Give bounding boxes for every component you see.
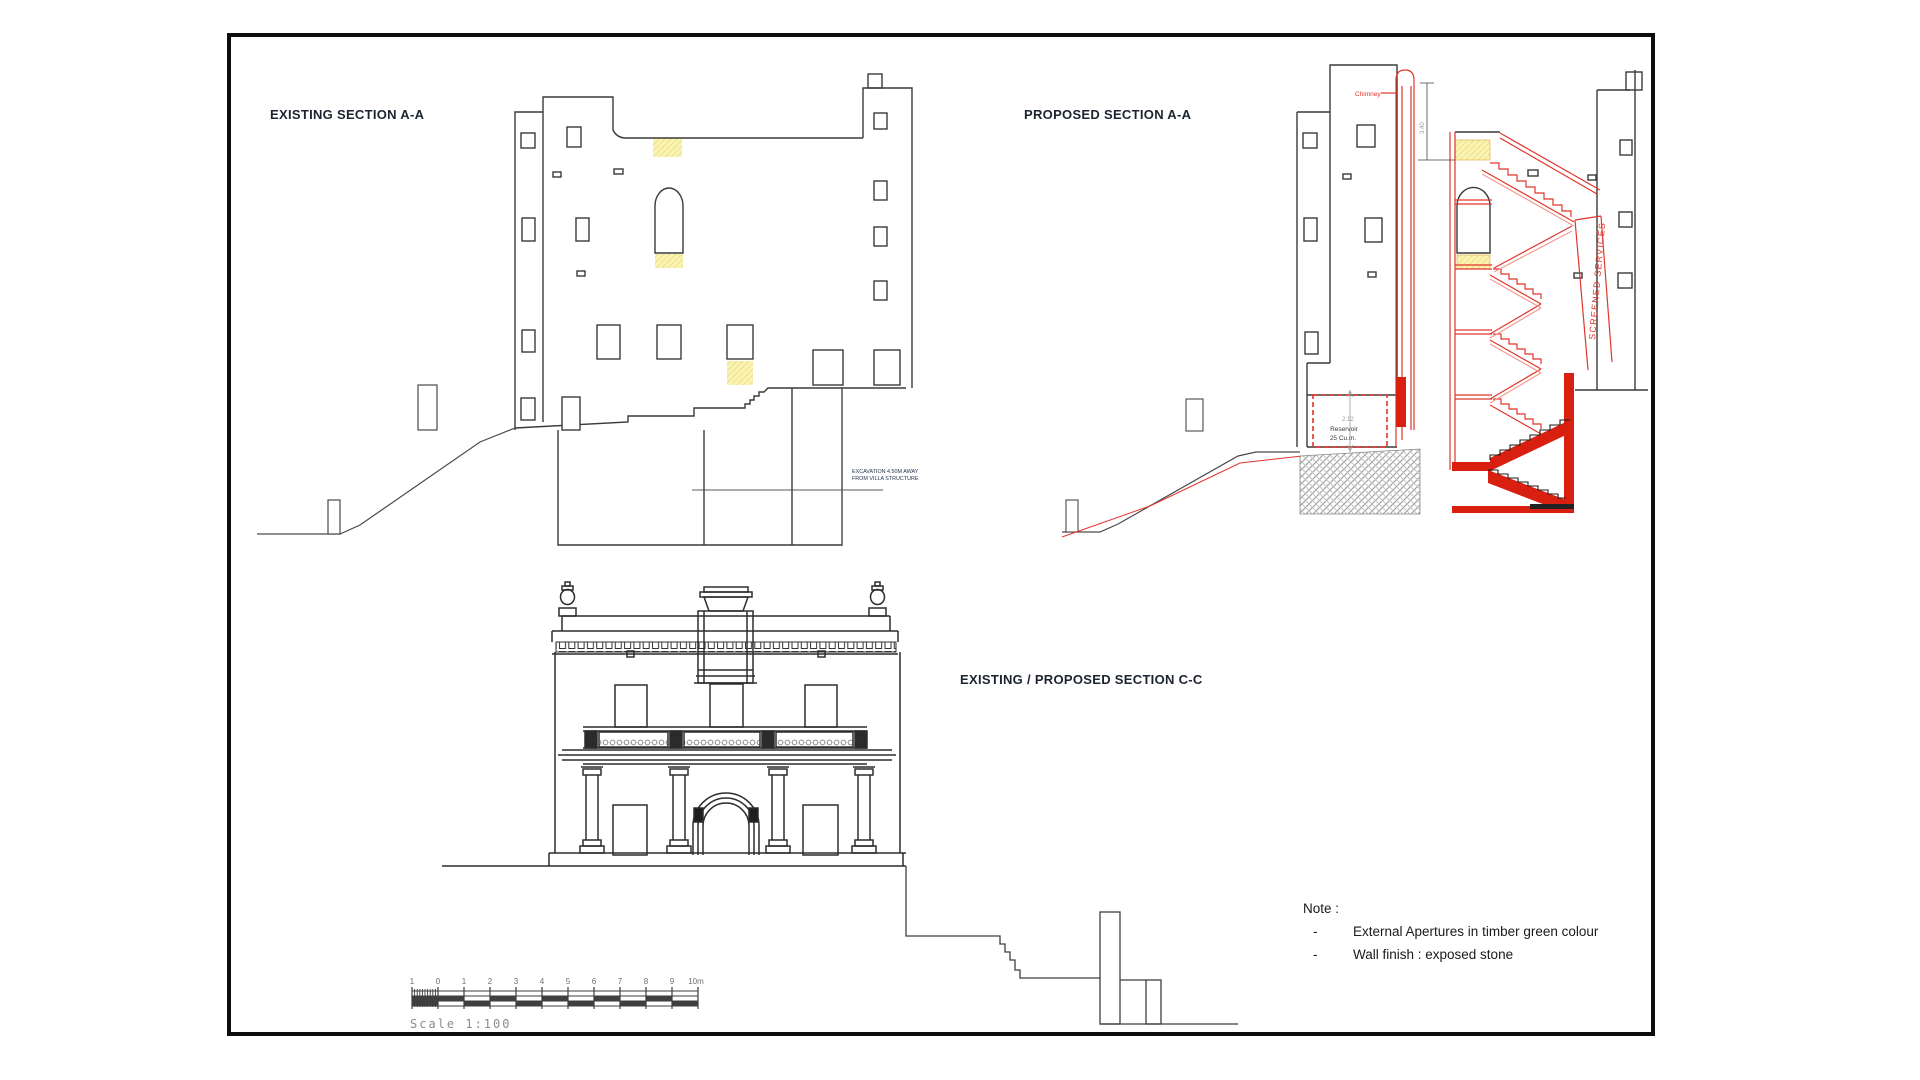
section-cc-title: EXISTING / PROPOSED SECTION C-C [960,672,1203,687]
svg-text:3: 3 [514,977,519,986]
excavation-annotation: EXCAVATION 4.50M AWAY FROM VILLA STRUCTU… [692,388,919,545]
svg-text:4: 4 [540,977,545,986]
stair-roof-slope [1500,133,1600,194]
svg-text:1: 1 [410,977,415,986]
existing-arched-window [655,188,683,253]
svg-text:10m: 10m [688,977,704,986]
stair-dimension-text: 3.40 [1420,122,1426,134]
scale-bar-graphic [412,987,698,1009]
excavation-note-line1: EXCAVATION 4.50M AWAY [852,469,919,475]
note-bullet-dash: - [1303,920,1353,943]
note-item: - Wall finish : exposed stone [1303,943,1663,966]
svg-text:5: 5 [566,977,571,986]
svg-text:9: 9 [670,977,675,986]
proposed-terrain [1062,399,1302,537]
proposed-thick-red-structure [1396,373,1574,513]
existing-section-drawing: EXISTING SECTION A-A [230,60,950,560]
note-item-text: Wall finish : exposed stone [1353,943,1513,966]
note-bullet-dash: - [1303,943,1353,966]
existing-slope-chimney [418,385,437,430]
urn-finial-right [869,582,886,616]
scale-bar-labels: 1 0 1 2 3 4 5 6 7 8 9 10m [410,977,704,986]
proposed-red-works [1381,70,1612,470]
reservoir-label-line1: Reservoir [1330,426,1359,433]
stair-flight-steps [1490,163,1571,217]
arched-doorway [693,793,759,855]
excavation-hatch-ground [1300,449,1420,514]
svg-text:8: 8 [644,977,649,986]
reservoir-dim-text: 2.12 [1342,417,1354,423]
svg-text:1: 1 [462,977,467,986]
scale-caption: Scale 1:100 [410,1017,511,1031]
terrain-pier-small [1146,980,1161,1024]
columns [580,767,876,853]
reservoir: 2.12 Reservoir 25 Cu.m. [1313,390,1387,452]
proposed-section-drawing: PROPOSED SECTION A-A [1000,55,1655,570]
cc-terrain [906,866,1238,1024]
svg-text:2: 2 [488,977,493,986]
urn-finial-left [559,582,576,616]
proposed-section-title: PROPOSED SECTION A-A [1024,107,1192,122]
balcony-balustrade [583,727,867,748]
proposed-arched-window [1457,187,1490,253]
scale-bar: 1 0 1 2 3 4 5 6 7 8 9 10m Scale 1:100 [400,965,720,1035]
drawing-sheet-page: EXISTING SECTION A-A [0,0,1920,1080]
existing-terrain [257,385,515,534]
note-item: - External Apertures in timber green col… [1303,920,1663,943]
dentil-cornice [556,642,896,652]
terrain-pier-large [1100,912,1120,1024]
existing-section-title: EXISTING SECTION A-A [270,107,425,122]
chimney-label: Chimney [1355,91,1381,98]
chimney-cap [1396,70,1414,80]
note-item-text: External Apertures in timber green colou… [1353,920,1598,943]
screened-services-label: SCREENED SERVICES [1587,221,1607,340]
central-lantern [694,587,757,683]
note-heading: Note : [1303,897,1663,920]
cc-facade [442,582,906,866]
svg-text:7: 7 [618,977,623,986]
existing-windows [521,113,887,430]
note-block: Note : - External Apertures in timber gr… [1303,897,1663,966]
svg-text:0: 0 [436,977,441,986]
reservoir-label-line2: 25 Cu.m. [1330,435,1357,442]
excavation-note-line2: FROM VILLA STRUCTURE [852,476,919,482]
svg-text:6: 6 [592,977,597,986]
